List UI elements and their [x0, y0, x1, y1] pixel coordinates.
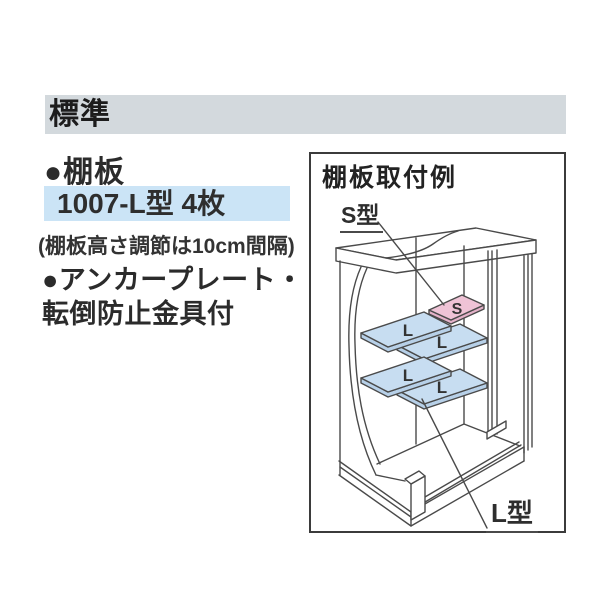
diagram-title: 棚板取付例 [322, 158, 457, 194]
s-type-label: S型 [340, 196, 383, 233]
shelf-l-letter-4: L [437, 378, 447, 397]
l-type-leader-line [422, 399, 487, 528]
shelf-l-letter-2: L [437, 333, 447, 352]
shelf-l-middle [361, 312, 487, 364]
shelf-l-letter-1: L [403, 321, 413, 340]
shed-center-post [487, 250, 506, 439]
shelf-spec-label: 1007-L型 4枚 [44, 186, 290, 221]
catalog-spec-image: 標準 ●棚板 1007-L型 4枚 (棚板高さ調節は10cm間隔) ●アンカープ… [0, 0, 600, 600]
anchor-bullet-text: ●アンカープレート・ 転倒防止金具付 [42, 263, 304, 331]
shelf-bullet-text: ●棚板 [44, 147, 125, 191]
standard-header-label: 標準 [45, 95, 566, 134]
shelf-l-letter-3: L [403, 366, 413, 385]
shelf-example-inner: S L L L L 棚板取付例 S型 L型 [311, 154, 564, 531]
shelf-spec-highlight: 1007-L型 4枚 [44, 186, 290, 221]
shed-right-posts [524, 254, 532, 453]
shed-left-wall-cutaway [340, 261, 380, 475]
anchor-bullet-line2: 転倒防止金具付 [42, 297, 304, 331]
shelf-l-lower [361, 357, 487, 409]
shelf-s-letter: S [452, 301, 463, 318]
shelf-example-box: S L L L L 棚板取付例 S型 L型 [309, 152, 566, 533]
l-type-label: L型 [486, 493, 538, 533]
shelf-note-text: (棚板高さ調節は10cm間隔) [38, 230, 295, 260]
standard-header-bar: 標準 [45, 95, 566, 134]
anchor-bullet-line1: ●アンカープレート・ [42, 263, 304, 297]
shed-roof [336, 228, 536, 273]
